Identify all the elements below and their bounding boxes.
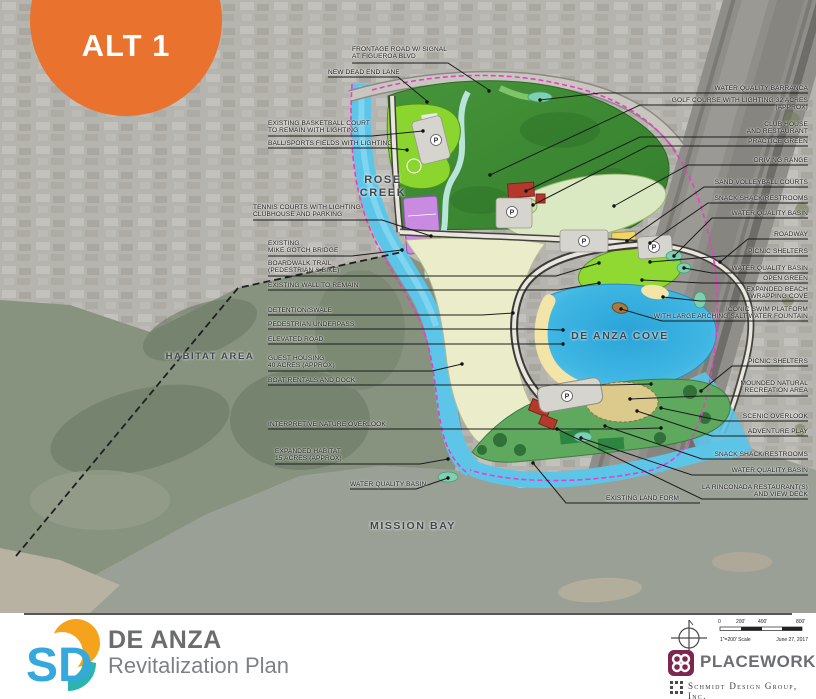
scale-note: 1"=200' Scale (720, 637, 751, 643)
scale-tick: 200' (736, 619, 745, 625)
callout-picnic-shelters-south: PICNIC SHELTERS (748, 358, 808, 365)
schmidt-design-group-text: Schmidt Design Group, Inc. (688, 681, 816, 699)
parking-icon: P (434, 138, 439, 145)
site-plan-map: P P P P P (0, 0, 816, 613)
plan-subtitle: Revitalization Plan (108, 653, 289, 679)
callout-frontage-road: FRONTAGE ROAD W/ SIGNAL AT FIGUEROA BLVD (352, 46, 447, 61)
scale-tick: 800' (796, 619, 805, 625)
callout-open-green: OPEN GREEN (763, 275, 808, 282)
callout-existing-land-form: EXISTING LAND FORM (606, 495, 679, 502)
callout-snack-shack-north: SNACK SHACK/RESTROOMS (715, 195, 808, 202)
callout-water-quality-basin-e: WATER QUALITY BASIN (732, 265, 808, 272)
callout-new-dead-end-lane: NEW DEAD END LANE (328, 69, 400, 76)
callout-water-quality-barranca: WATER QUALITY BARRANCA (715, 85, 808, 92)
callout-boat-rentals: BOAT RENTALS AND DOCK (268, 377, 355, 384)
callout-driving-range: DRIVING RANGE (754, 157, 808, 164)
scale-tick: 0 (718, 619, 721, 625)
callout-boardwalk-trail: BOARDWALK TRAIL (PEDESTRIAN & BIKE) (268, 260, 339, 275)
scale-tick: 400' (758, 619, 767, 625)
callout-expanded-beach: EXPANDED BEACH WRAPPING COVE (746, 286, 808, 301)
schmidt-logo-icon (670, 681, 683, 694)
callout-existing-wall: EXISTING WALL TO REMAIN (268, 282, 359, 289)
callout-water-quality-basin-s: WATER QUALITY BASIN (732, 467, 808, 474)
callout-nature-overlook: INTERPRETIVE NATURE OVERLOOK (268, 421, 386, 428)
sheet-date: June 27, 2017 (776, 637, 808, 643)
callout-detention-swale: DETENTION/SWALE (268, 307, 332, 314)
callout-water-quality-basin-ne: WATER QUALITY BASIN (732, 210, 808, 217)
alt1-plan-sheet: P P P P P (0, 0, 816, 699)
callout-practice-green: PRACTICE GREEN (748, 138, 808, 145)
parking-icon: P (582, 239, 587, 246)
sd-logo-icon: SD (24, 619, 104, 699)
mission-bay-label: MISSION BAY (363, 520, 463, 532)
callout-la-rinconada: LA RINCONADA RESTAURANT(S) AND VIEW DECK (702, 484, 808, 499)
callout-adventure-play: ADVENTURE PLAY (748, 428, 808, 435)
callout-snack-shack-south: SNACK SHACK/RESTROOMS (715, 451, 808, 458)
habitat-area-label: HABITAT AREA (160, 351, 260, 362)
placeworks-logo-text: PLACEWORKS (700, 652, 816, 672)
scale-bar: 0 200' 400' 800' 1"=200' Scale June 27, … (712, 619, 808, 649)
de-anza-cove-label: DE ANZA COVE (565, 330, 675, 342)
parking-icon: P (565, 394, 570, 401)
callout-picnic-shelters-north: PICNIC SHELTERS (748, 248, 808, 255)
club-house-building (508, 182, 535, 198)
footer-divider (24, 613, 792, 615)
rose-creek-label: ROSE CREEK (352, 174, 414, 200)
callout-elevated-road: ELEVATED ROAD (268, 336, 324, 343)
callout-mounded-recreation: MOUNDED NATURAL RECREATION AREA (741, 380, 809, 395)
callout-pedestrian-underpass: PEDESTRIAN UNDERPASS (268, 321, 354, 328)
callout-swim-platform: ICONIC SWIM PLATFORM WITH LARGE ARCHING … (654, 306, 808, 321)
callout-club-house: CLUB HOUSE AND RESTAURANT (747, 121, 808, 136)
parking-icon: P (652, 245, 657, 252)
parking-icon: P (510, 210, 515, 217)
alt-badge-label: ALT 1 (30, 28, 222, 64)
callout-guest-housing: GUEST HOUSING 40 ACRES (APPROX) (268, 355, 335, 370)
plan-title: DE ANZA (108, 626, 222, 655)
callout-roadway: ROADWAY (774, 231, 808, 238)
callout-sand-volleyball: SAND VOLLEYBALL COURTS (715, 179, 808, 186)
callout-existing-basketball-court: EXISTING BASKETBALL COURT TO REMAIN WITH… (268, 120, 370, 135)
sd-logo-text: SD (26, 639, 93, 692)
callout-scenic-overlook: SCENIC OVERLOOK (743, 413, 808, 420)
sheet-footer: SD DE ANZA Revitalization Plan 0 200' 40… (0, 613, 816, 699)
callout-expanded-habitat: EXPANDED HABITAT 15 ACRES (APPROX) (275, 448, 342, 463)
callout-tennis-courts: TENNIS COURTS WITH LIGHTING CLUBHOUSE AN… (253, 204, 361, 219)
placeworks-logo-icon (668, 650, 694, 676)
callout-golf-course: GOLF COURSE WITH LIGHTING 32 ACRES (APPR… (638, 97, 808, 112)
callout-water-quality-basin-sw: WATER QUALITY BASIN (350, 481, 426, 488)
callout-mike-gotch-bridge: EXISTING MIKE GOTCH BRIDGE (268, 240, 338, 255)
callout-ball-sports-fields: BALL/SPORTS FIELDS WITH LIGHTING (268, 140, 393, 147)
